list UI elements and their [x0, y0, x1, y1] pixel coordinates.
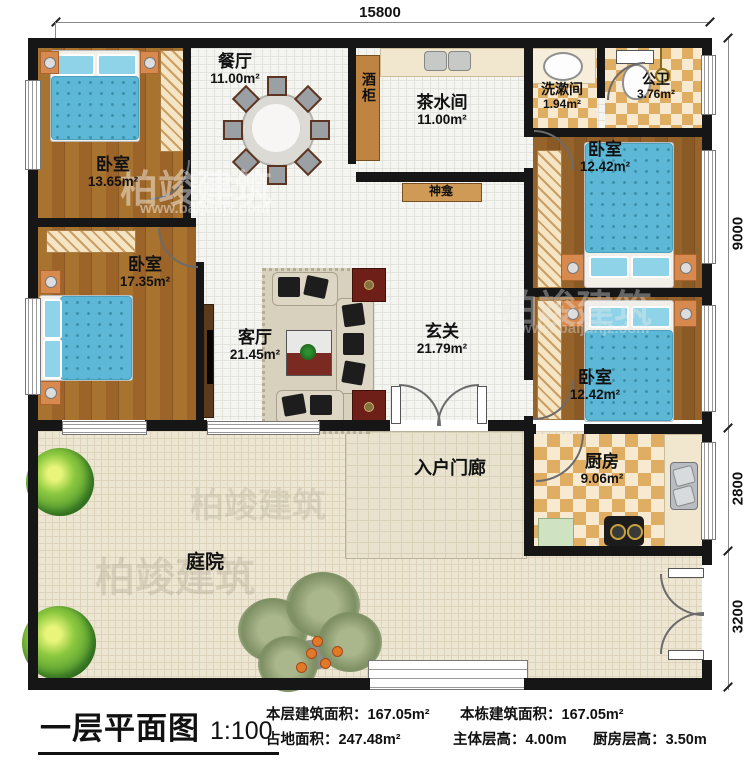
sofa-cushion	[343, 333, 364, 355]
watermark: www.baijunjz.com	[140, 200, 269, 217]
window	[25, 298, 41, 395]
nightstand	[40, 51, 59, 74]
bed-blanket	[51, 76, 139, 140]
legend-title-wrap: 一层平面图1:100	[38, 703, 279, 755]
nightstand	[561, 254, 584, 281]
wall-kitchen	[524, 546, 712, 556]
sink-icon	[448, 51, 471, 71]
nightstand	[140, 51, 159, 74]
wine-cabinet-label: 酒柜	[354, 72, 376, 104]
wall-bottom	[524, 678, 712, 690]
sofa-cushion	[278, 277, 300, 297]
window	[701, 442, 716, 540]
bed-pillow	[631, 256, 671, 278]
bed-pillow	[55, 54, 95, 76]
plan-scale: 1:100	[210, 717, 273, 745]
sofa-cushion	[342, 303, 366, 328]
stove-burner	[610, 524, 626, 540]
nightstand	[40, 270, 61, 294]
side-table	[352, 390, 386, 424]
wall-house-south	[28, 420, 62, 431]
stat-kitchen-height: 厨房层高：3.50m	[593, 732, 707, 748]
side-table	[352, 268, 386, 302]
shrine-label: 神龛	[402, 185, 480, 198]
dim-top-value: 15800	[330, 4, 430, 21]
watermark: 柏竣建筑	[190, 478, 326, 527]
stove-burner	[627, 524, 643, 540]
room-label-bedroom-tl: 卧室 13.65m²	[63, 155, 163, 189]
floor-plan: 酒柜 神龛	[0, 0, 750, 761]
room-label-wash: 洗漱间 1.94m²	[524, 82, 600, 111]
stat-building-area: 本栋建筑面积：167.05m²	[460, 707, 624, 723]
room-label-bath: 公卫 3.76m²	[618, 72, 694, 101]
wall-bottom	[28, 678, 370, 690]
room-label-kitchen: 厨房 9.06m²	[552, 452, 652, 486]
window	[701, 150, 716, 264]
room-label-living: 客厅 21.45m²	[205, 328, 305, 362]
wall-kitchen	[524, 434, 534, 556]
room-label-bedroom-r: 卧室 12.42m²	[545, 368, 645, 402]
room-label-foyer: 玄关 21.79m²	[392, 322, 492, 356]
window	[701, 305, 716, 412]
sofa-cushion	[303, 275, 329, 299]
nightstand	[674, 254, 697, 281]
wardrobe	[46, 230, 136, 253]
window	[207, 421, 320, 435]
toilet-tank	[616, 50, 654, 64]
bed-pillow	[589, 256, 629, 278]
stat-floor-area: 本层建筑面积：167.05m²	[266, 707, 430, 723]
fruit-icon	[296, 662, 307, 673]
room-label-bedroom-left: 卧室 17.35m²	[95, 255, 195, 289]
wall-int	[524, 168, 533, 380]
dim-ext	[55, 22, 56, 38]
legend-bar: 一层平面图1:100 本层建筑面积：167.05m² 本栋建筑面积：167.05…	[0, 695, 750, 761]
bed-pillow	[97, 54, 137, 76]
room-label-bedroom-tr: 卧室 12.42m²	[555, 140, 655, 174]
entry-steps	[368, 660, 528, 690]
room-label-courtyard: 庭院	[155, 552, 255, 573]
nightstand	[674, 300, 697, 327]
room-label-porch: 入户门廊	[385, 458, 515, 478]
plan-title: 一层平面图	[40, 711, 200, 746]
wall-kitchen	[524, 424, 536, 434]
window	[25, 80, 41, 170]
wash-basin-icon	[543, 52, 583, 81]
sofa-cushion	[341, 360, 366, 385]
window	[62, 421, 147, 435]
room-label-dining: 餐厅 11.00m²	[185, 52, 285, 86]
dim-line-top	[55, 22, 711, 23]
fruit-icon	[332, 646, 343, 657]
dim-right-mid: 2800	[730, 459, 747, 519]
wall-house-south	[488, 420, 528, 431]
dining-chair	[310, 120, 330, 140]
room-label-tea: 茶水间 11.00m²	[392, 93, 492, 127]
kitchen-cabinet	[538, 518, 574, 548]
wall-kitchen	[584, 424, 712, 434]
dim-right-lower: 3200	[730, 587, 747, 647]
stat-main-height: 主体层高：4.00m	[453, 732, 567, 748]
sofa-cushion	[281, 393, 306, 417]
wall-int	[28, 218, 196, 227]
bed-blanket	[60, 296, 132, 380]
wall-int	[356, 172, 528, 182]
watermark: www.baijunjz.com	[520, 320, 649, 337]
wall-int	[348, 48, 356, 164]
porch-slab	[345, 431, 527, 559]
dim-right-upper: 9000	[730, 204, 747, 264]
stat-land-area: 占地面积：247.48m²	[266, 732, 401, 748]
dining-chair	[223, 120, 243, 140]
wall-house-south	[318, 420, 390, 431]
bed-pillow	[43, 299, 62, 339]
fruit-icon	[320, 658, 331, 669]
wine-cabinet	[352, 55, 380, 161]
sofa-cushion	[310, 395, 332, 415]
nightstand	[40, 381, 61, 405]
sink-icon	[424, 51, 447, 71]
wall-house-south	[145, 420, 207, 431]
shower-hose	[660, 48, 662, 70]
window	[701, 55, 716, 115]
bed-pillow	[43, 339, 62, 379]
fruit-icon	[306, 648, 317, 659]
wardrobe	[160, 50, 185, 152]
dining-table-top	[252, 104, 300, 152]
wall-top	[28, 38, 712, 48]
fruit-icon	[312, 636, 323, 647]
wall-int	[196, 262, 204, 422]
